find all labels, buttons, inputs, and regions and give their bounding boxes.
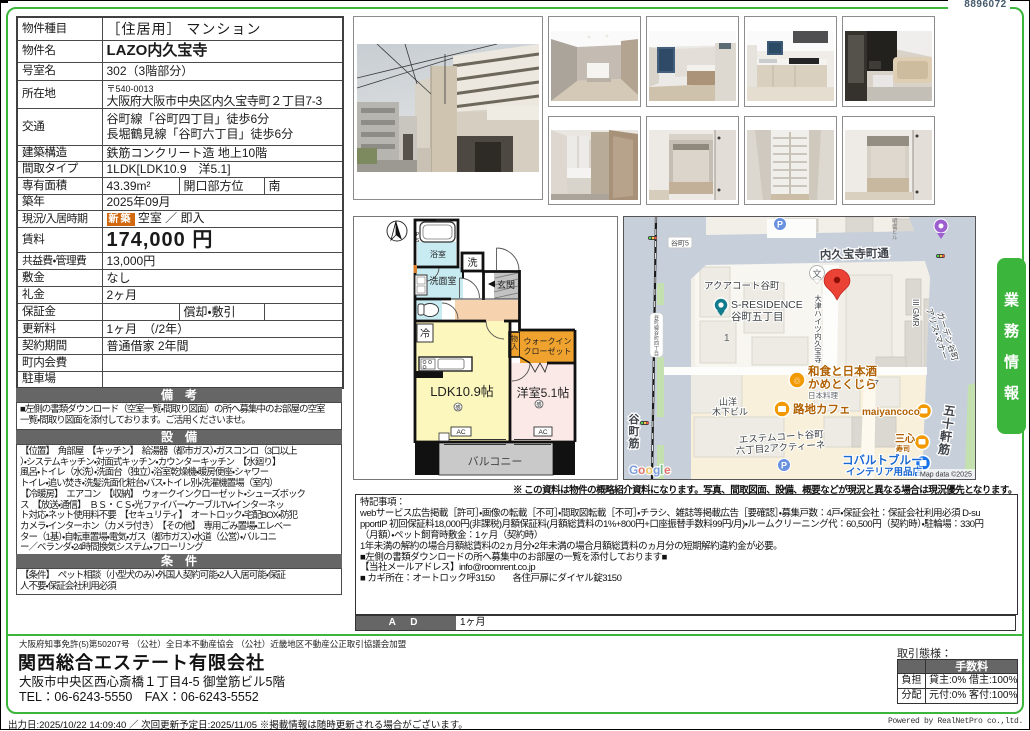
- svg-text:インテリア用品店: インテリア用品店: [846, 466, 923, 478]
- svg-text:コバルトブルー: コバルトブルー: [842, 453, 923, 467]
- svg-text:Map data ©2025: Map data ©2025: [920, 471, 972, 479]
- svg-text:e: e: [664, 463, 671, 477]
- svg-text:AC: AC: [456, 429, 465, 436]
- svg-text:クローゼット: クローゼット: [524, 346, 572, 356]
- svg-text:明盛ビル: 明盛ビル: [892, 218, 898, 242]
- svg-text:日本料理: 日本料理: [808, 390, 838, 400]
- svg-text:文: 文: [812, 268, 821, 279]
- svg-text:o: o: [646, 463, 653, 477]
- svg-text:1: 1: [724, 333, 730, 344]
- svg-text:III GMR: III GMR: [911, 299, 920, 327]
- svg-text:o: o: [638, 463, 645, 477]
- svg-text:ウォークイン: ウォークイン: [524, 337, 572, 346]
- svg-text:大津ハイツ内久宝寺: 大津ハイツ内久宝寺: [814, 293, 822, 364]
- svg-text:浴室: 浴室: [430, 249, 446, 259]
- svg-text:谷町筋: 谷町筋: [628, 412, 640, 450]
- svg-text:S-RESIDENCE: S-RESIDENCE: [731, 299, 803, 311]
- svg-text:感: 感: [536, 401, 542, 409]
- svg-text:山洋: 山洋: [719, 396, 737, 407]
- svg-text:l: l: [660, 463, 663, 477]
- svg-text:谷町5: 谷町5: [671, 239, 689, 248]
- svg-text:AC: AC: [538, 429, 547, 436]
- svg-text:感: 感: [455, 404, 461, 412]
- svg-text:路地カフェ: 路地カフェ: [793, 402, 851, 416]
- svg-text:三心: 三心: [895, 432, 915, 445]
- svg-text:谷町線谷町四丁目: 谷町線谷町四丁目: [654, 314, 659, 357]
- svg-text:冷: 冷: [420, 328, 430, 340]
- svg-text:♲: ♲: [793, 376, 801, 386]
- svg-text:洗面室: 洗面室: [429, 275, 456, 286]
- svg-text:寿司: 寿司: [896, 444, 910, 453]
- svg-text:物: 物: [511, 334, 518, 343]
- svg-text:入: 入: [511, 343, 518, 351]
- svg-text:P: P: [781, 461, 787, 471]
- svg-text:アクアコート谷町: アクアコート谷町: [704, 281, 780, 292]
- svg-text:玄関: 玄関: [497, 279, 515, 290]
- svg-text:LDK10.9帖: LDK10.9帖: [430, 384, 494, 399]
- svg-text:かめとくじら: かめとくじら: [808, 378, 877, 391]
- svg-text:谷町五丁目: 谷町五丁目: [731, 311, 784, 323]
- svg-text:バルコニー: バルコニー: [468, 455, 523, 468]
- svg-text:洗: 洗: [468, 257, 478, 269]
- svg-text:G: G: [629, 463, 638, 477]
- svg-text:木下ビル: 木下ビル: [712, 406, 748, 417]
- svg-text:和食と日本酒: 和食と日本酒: [808, 364, 877, 378]
- svg-text:P: P: [777, 220, 783, 230]
- svg-text:洋室5.1帖: 洋室5.1帖: [517, 385, 570, 400]
- svg-text:maiyancoco: maiyancoco: [862, 407, 920, 418]
